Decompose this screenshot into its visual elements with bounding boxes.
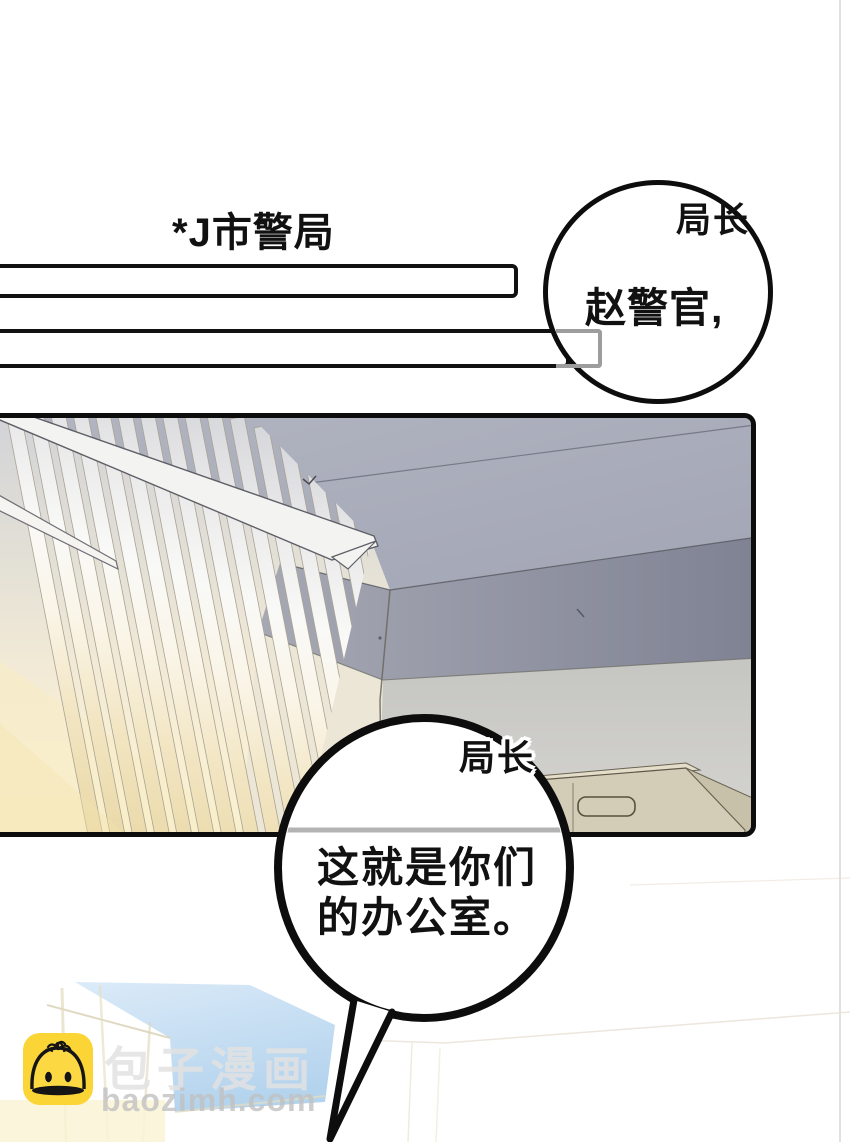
baozi-bun-icon [22, 1032, 96, 1110]
watermark-domain: baozimh.com [101, 1082, 316, 1119]
speaker-label-bottom: 局长 [459, 729, 535, 781]
gray-caption-box [556, 329, 602, 368]
comic-page: 包子漫画 baozimh.com [0, 0, 850, 1142]
speech-text-top: 赵警官, [585, 274, 723, 334]
location-caption: *J市警局 [172, 200, 335, 258]
caption-bar-2 [0, 329, 570, 368]
speech-text-bottom-line2: 的办公室。 [317, 884, 537, 945]
speaker-label-top: 局长 [676, 192, 750, 243]
panel-office-interior [0, 413, 756, 837]
caption-bar-1 [0, 264, 518, 298]
